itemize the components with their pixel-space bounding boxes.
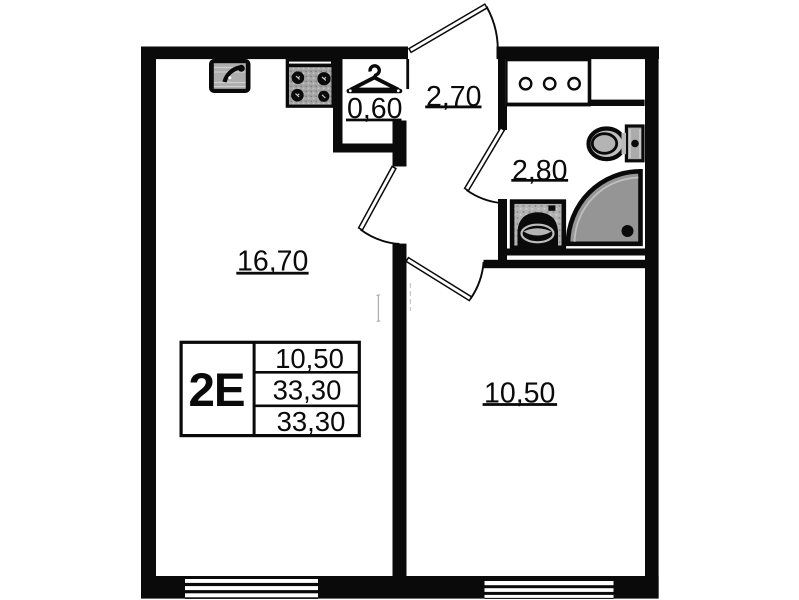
svg-text:2E: 2E (188, 364, 244, 417)
svg-text:2,80: 2,80 (512, 155, 567, 187)
svg-text:10,50: 10,50 (275, 343, 344, 374)
svg-text:33,30: 33,30 (277, 406, 346, 437)
svg-text:33,30: 33,30 (273, 375, 342, 406)
